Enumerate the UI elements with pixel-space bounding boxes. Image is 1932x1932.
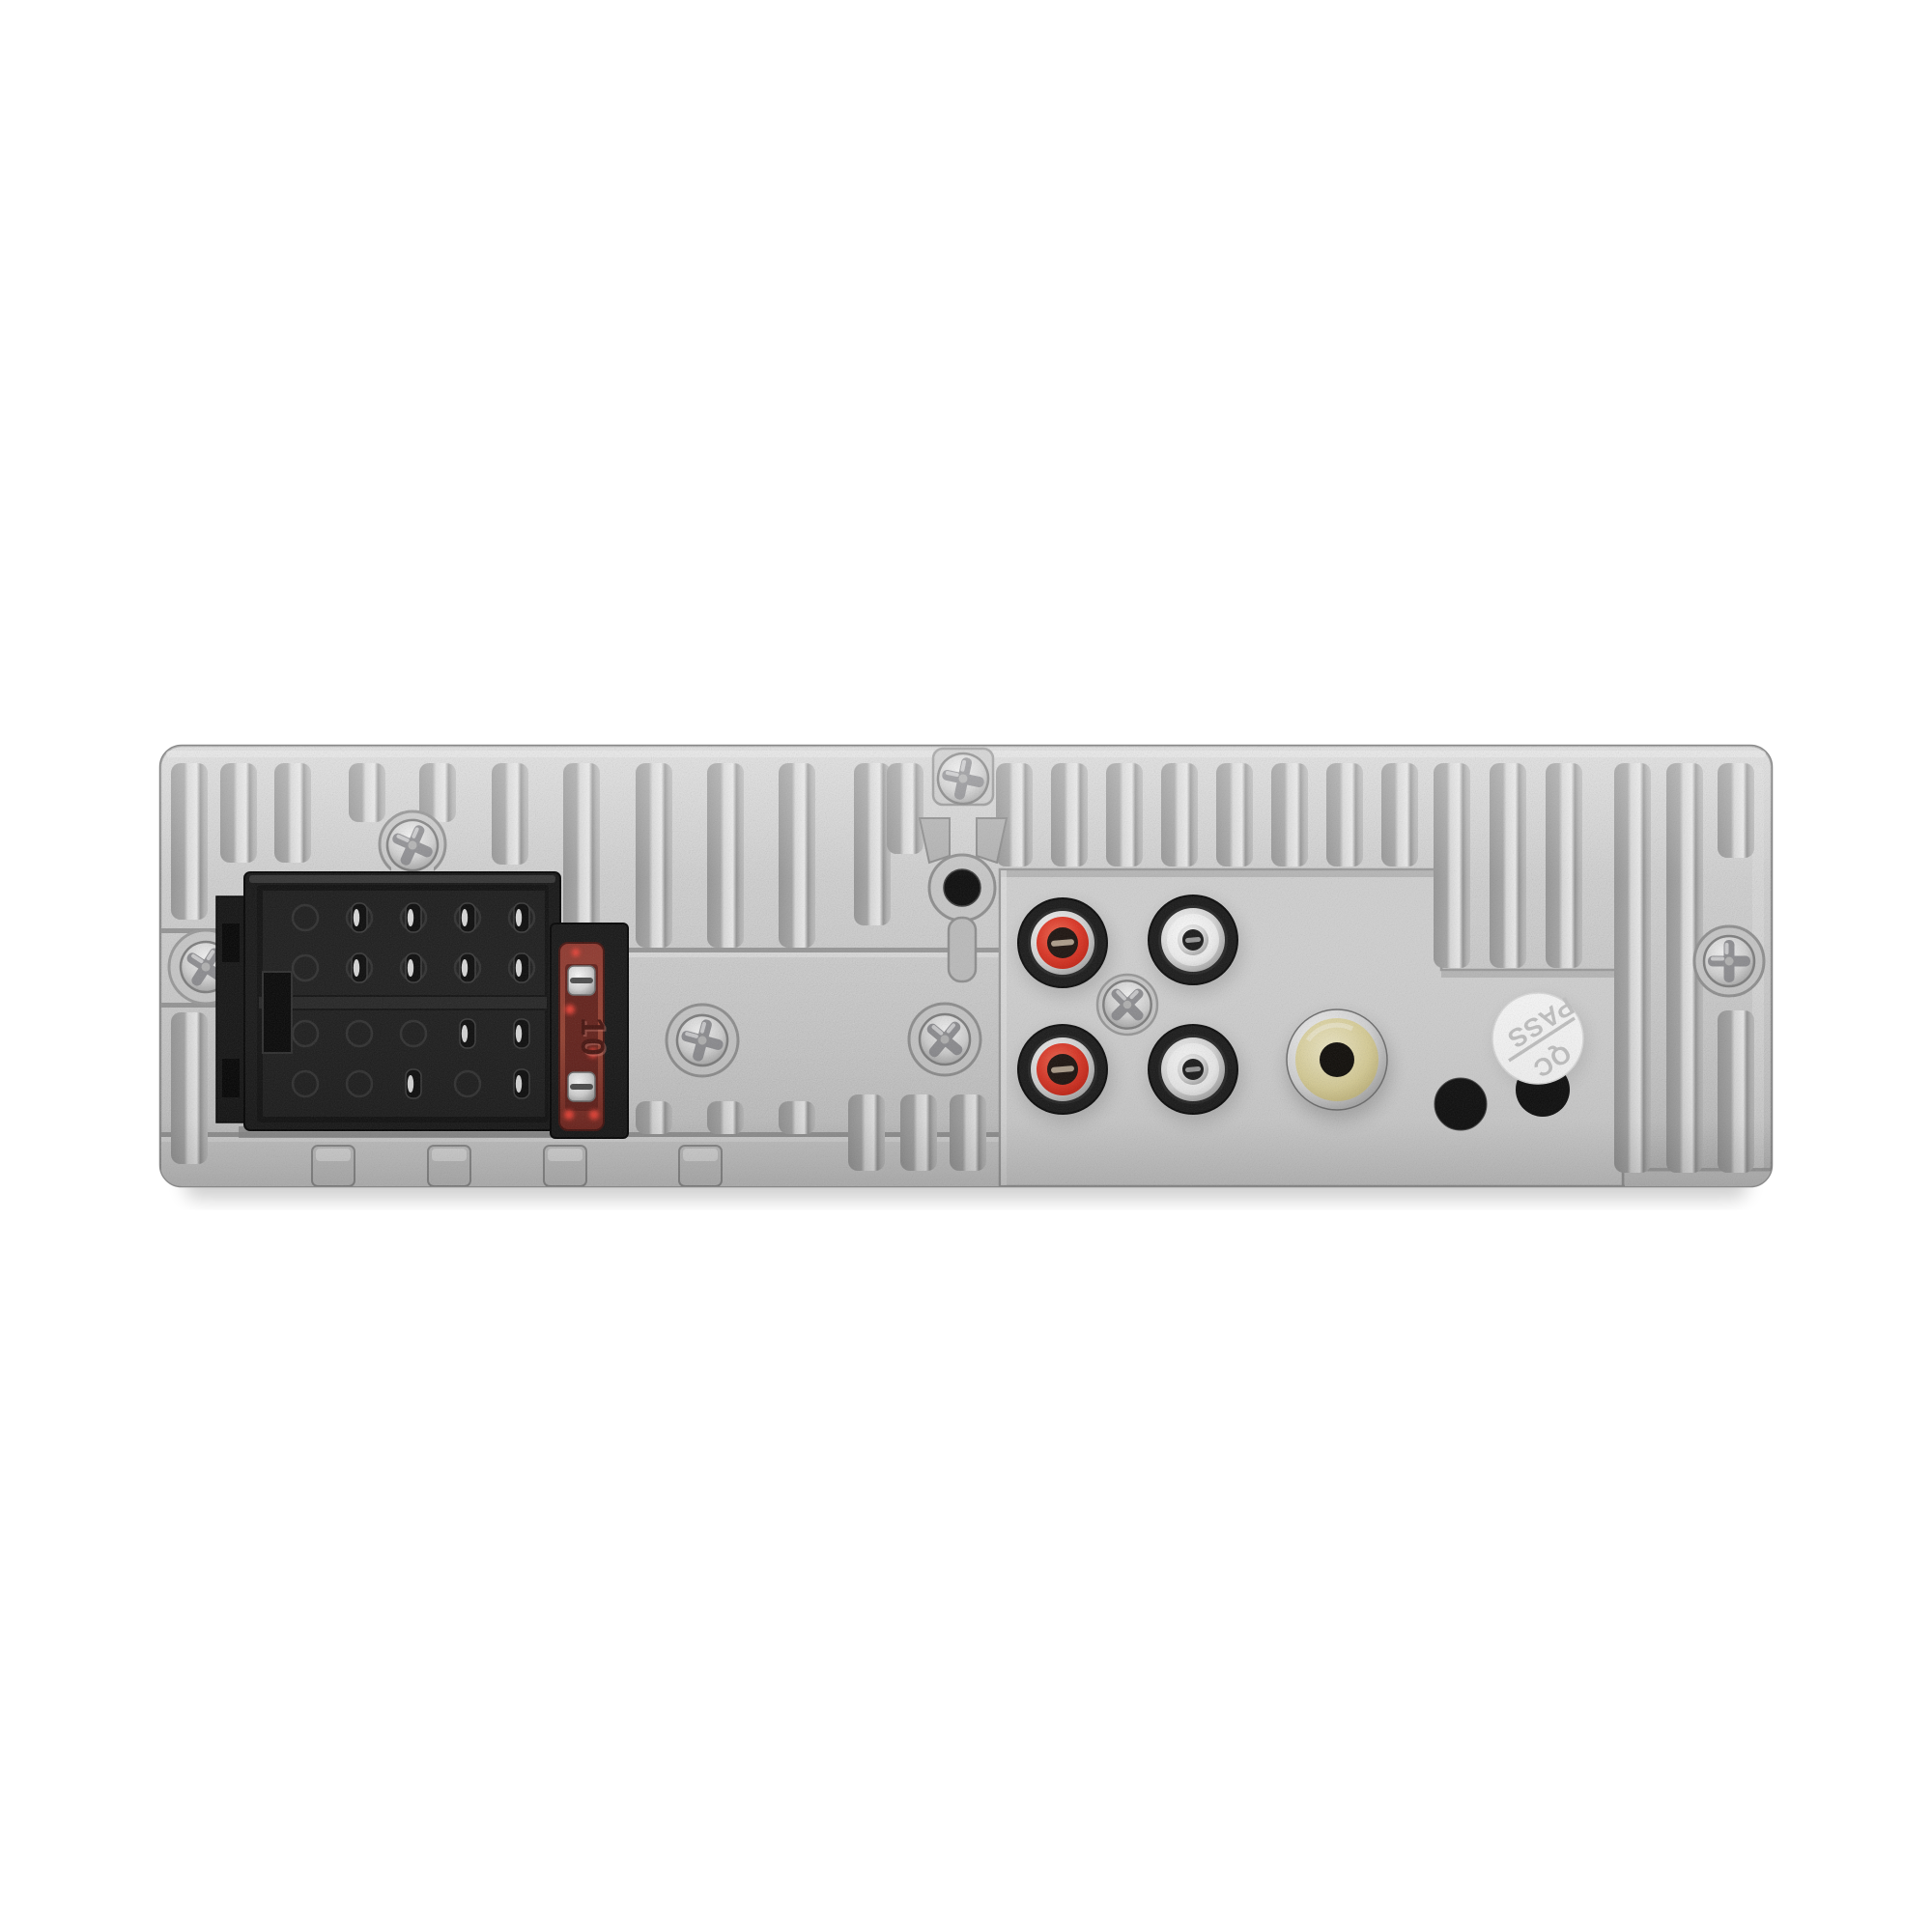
product-photo-canvas: 10 10 PASS QC: [0, 0, 1932, 1932]
car-stereo-rear-panel: 10 10 PASS QC: [0, 0, 1932, 1932]
metal-grain-sparkle: [160, 746, 1772, 1186]
